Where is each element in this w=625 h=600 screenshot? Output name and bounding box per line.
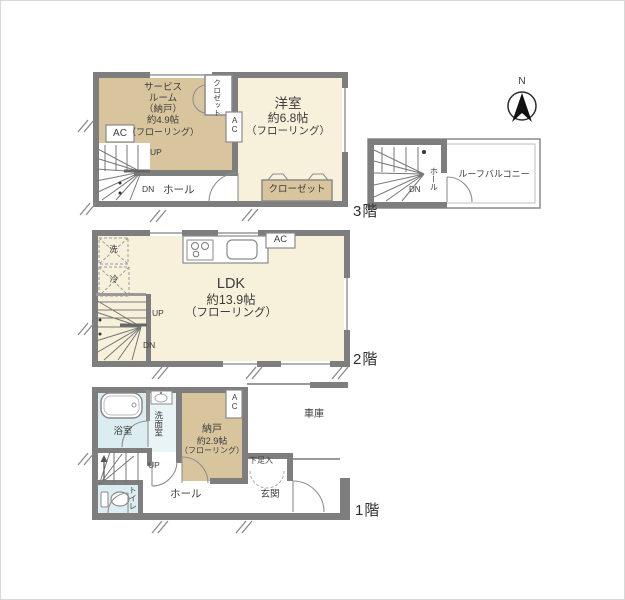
entrance-label: 玄関: [250, 490, 290, 501]
floor2-label: 2階: [353, 351, 378, 368]
hall-label-roof: ホール: [429, 167, 438, 205]
fridge-label: 冷: [99, 275, 129, 285]
roof-balcony-label: ルーフバルコニー: [450, 169, 538, 179]
ac-label-2f: AC: [266, 235, 295, 246]
sink-icon: [227, 240, 257, 259]
ldk-line: （フローリング）: [170, 307, 292, 320]
dn-label-roof: DN: [409, 185, 421, 194]
compass-icon: [508, 92, 536, 122]
washer-label: 洗: [99, 245, 128, 255]
washroom-label: 洗面室: [153, 411, 163, 457]
storage-label: 納戸 約2.9帖 （フローリング）: [174, 424, 250, 455]
western-room-label: 洋室 約6.8帖 （フローリング）: [232, 96, 344, 137]
western-room-line: 約6.8帖: [232, 112, 344, 126]
western-room-line: （フローリング）: [232, 125, 344, 137]
service-room-line: 約4.9帖: [100, 116, 226, 127]
storage-line: 納戸: [174, 424, 250, 436]
ac-label-3f-mid: AC: [230, 116, 239, 140]
up-label-3f: UP: [150, 148, 162, 158]
floor-plan-drawing: [0, 0, 625, 600]
hall-label-1f: ホール: [170, 488, 202, 500]
ldk-label: LDK 約13.9帖 （フローリング）: [170, 276, 292, 320]
dn-label-3f: DN: [142, 185, 154, 195]
floor3-label: 3階: [353, 203, 378, 220]
ldk-line: LDK: [170, 276, 292, 293]
stove-icon: [187, 240, 213, 260]
garage-label: 車庫: [294, 409, 334, 421]
closet-label-3f: クローゼット: [262, 185, 332, 196]
shoe-box-label: 下足入: [249, 456, 273, 465]
dn-label-2f: DN: [143, 341, 155, 351]
bath-label: 浴室: [98, 427, 148, 438]
storage-line: （フローリング）: [174, 446, 250, 455]
washbasin-icon: [151, 391, 172, 404]
up-label-1f: UP: [148, 461, 160, 471]
toilet-icon: [101, 492, 129, 507]
ac-label-3f-left: AC: [106, 128, 134, 140]
hall-label-3f: ホール: [163, 184, 195, 196]
bathtub-icon: [101, 393, 142, 418]
up-label-2f: UP: [152, 309, 164, 319]
western-room-line: 洋室: [232, 96, 344, 112]
floor1-label: 1階: [355, 502, 380, 519]
floor-plan: サービス ルーム （納戸） 約4.9帖 （フローリング） 洋室 約6.8帖 （フ…: [0, 0, 625, 600]
storage-line: 約2.9帖: [174, 436, 250, 446]
ac-label-1f: AC: [230, 393, 239, 417]
kitchen-counter: [183, 236, 268, 263]
compass-north-label: N: [516, 76, 528, 88]
ldk-line: 約13.9帖: [170, 293, 292, 307]
small-closet-label: クロゼット: [212, 79, 221, 113]
toilet-label: トイレ: [128, 486, 137, 514]
